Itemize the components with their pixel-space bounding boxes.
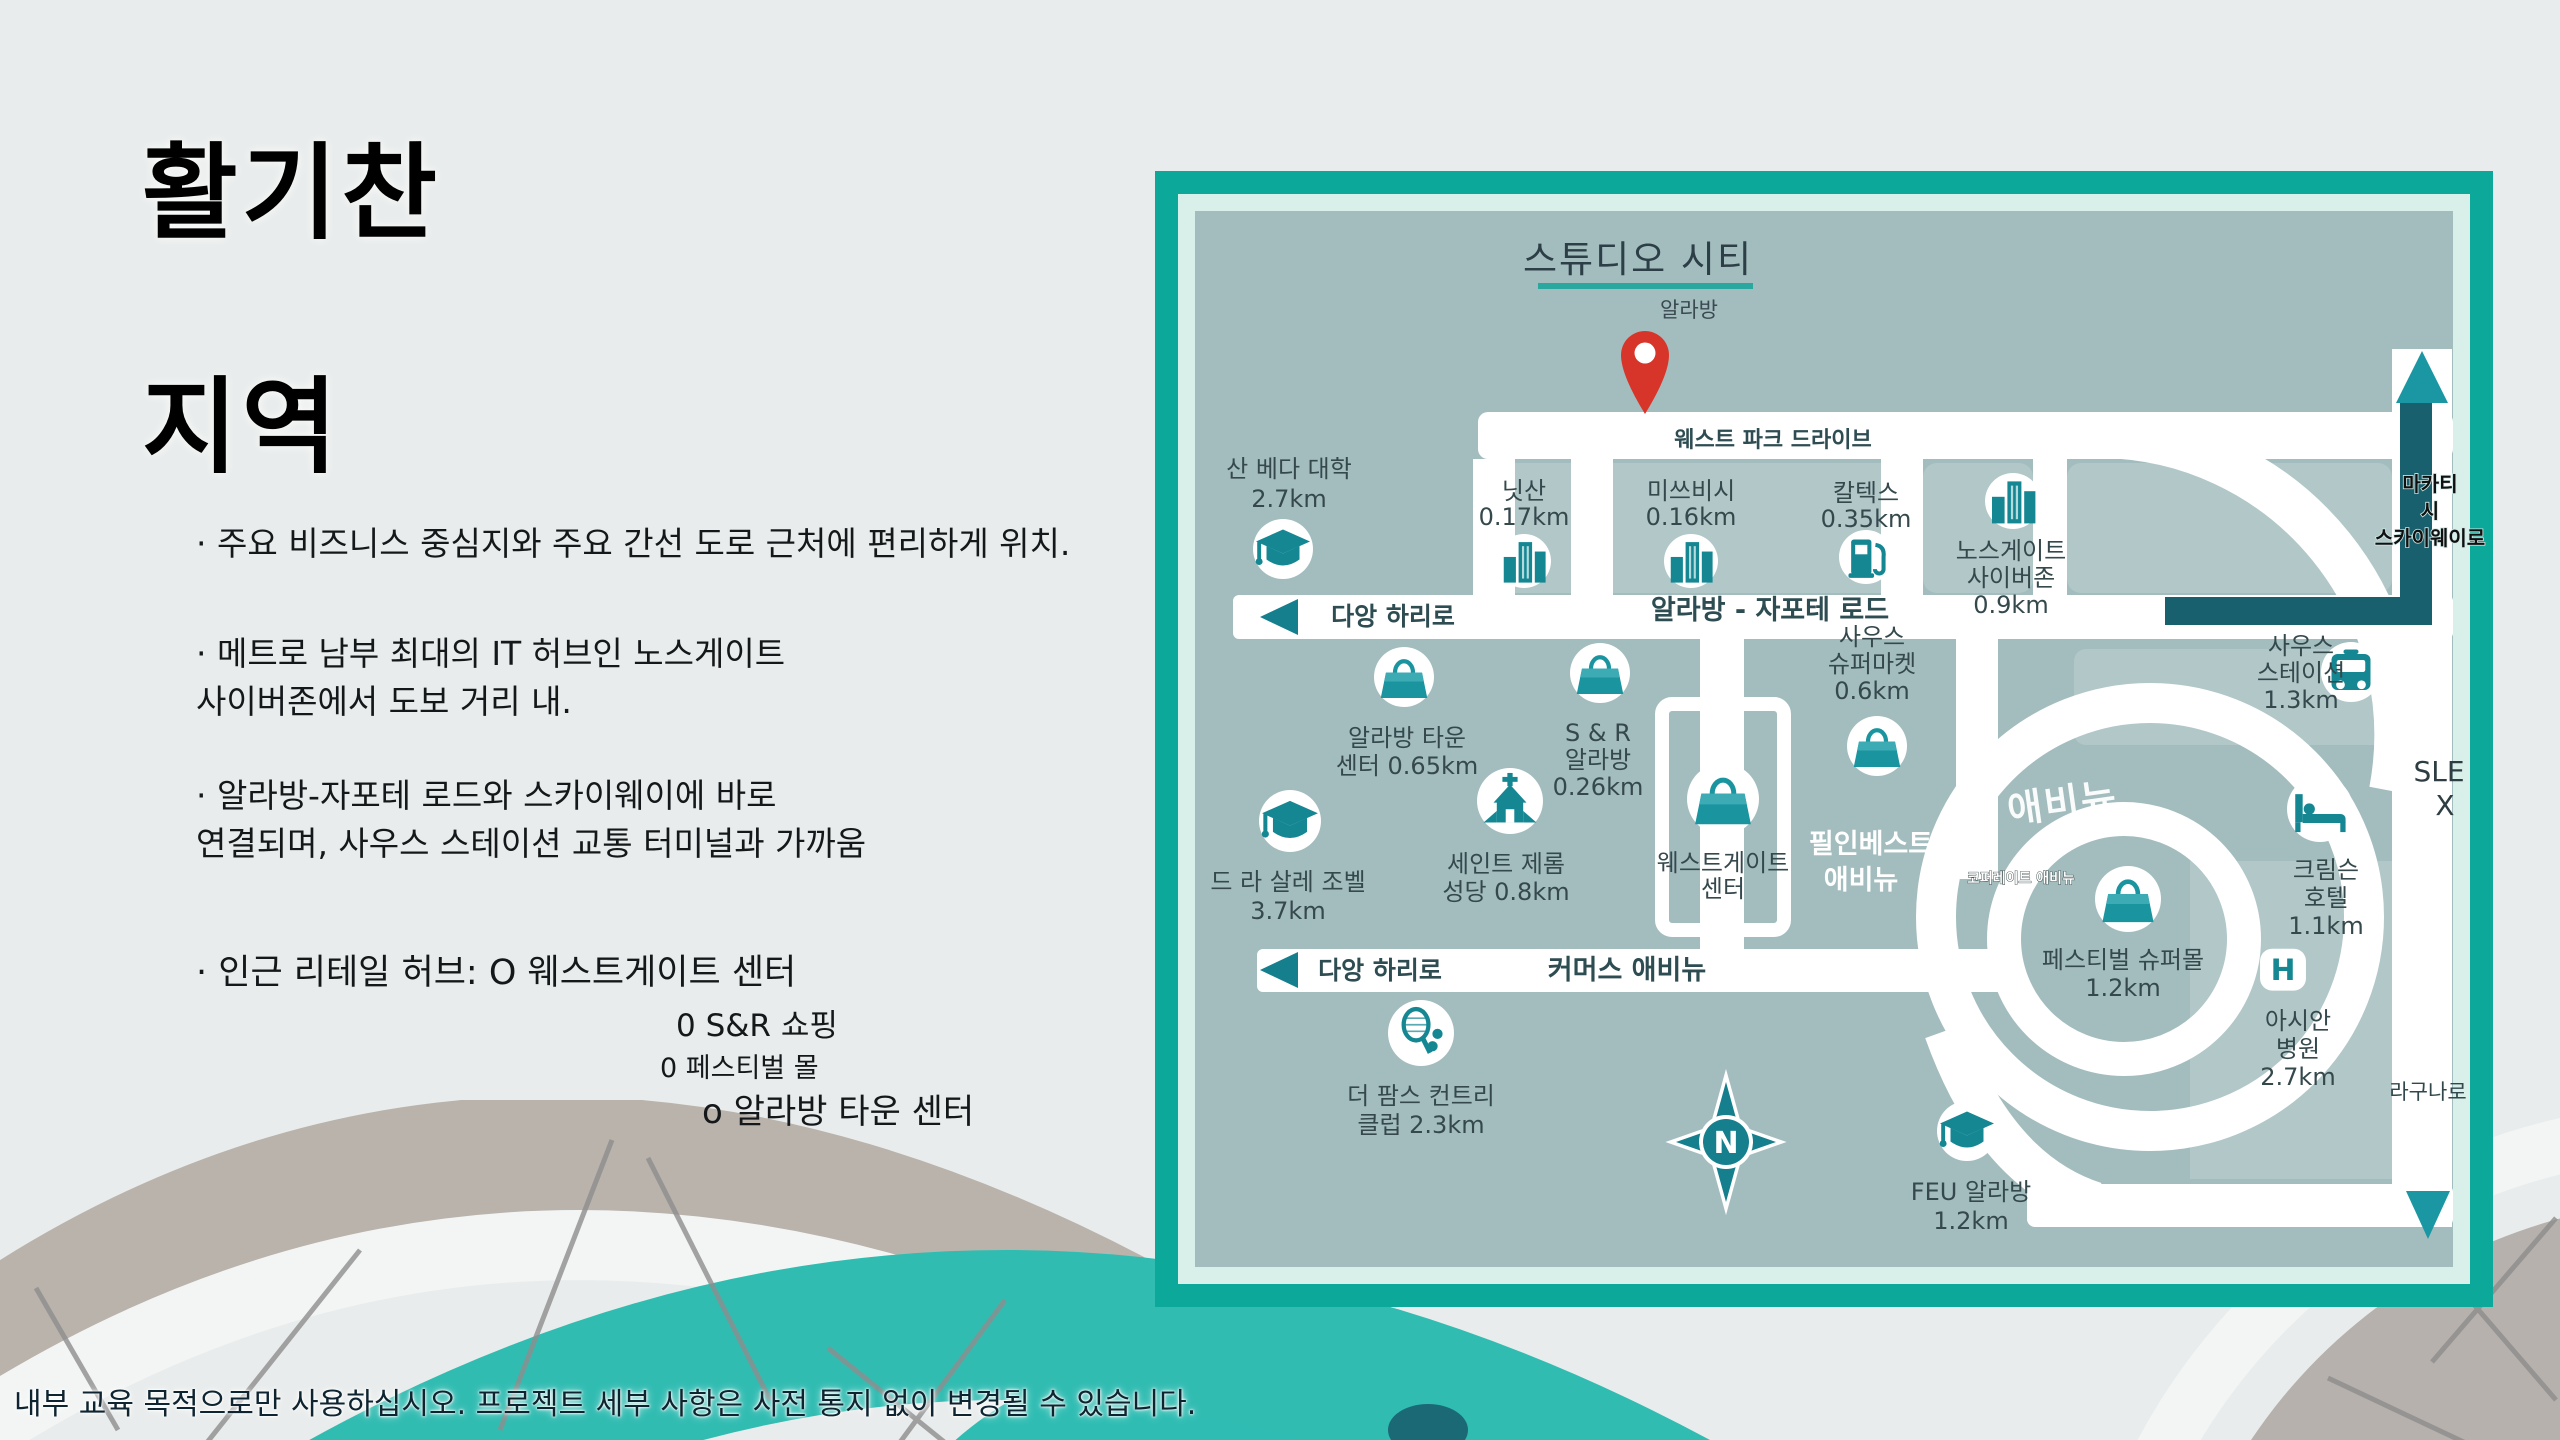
poi-label: 성당 0.8km: [1442, 878, 1569, 906]
poi-label: 스테이션: [2257, 659, 2345, 687]
retail-subitem-snr: 0 S&R 쇼핑: [676, 1000, 838, 1045]
grad-cap-icon: [1937, 1101, 1997, 1161]
buildings-icon: [1664, 534, 1718, 588]
poi-label: 더 팜스 컨트리: [1347, 1082, 1495, 1110]
bag-icon: [1847, 716, 1907, 776]
grad-cap-icon: [1259, 790, 1321, 852]
poi-label: 0.6km: [1834, 677, 1909, 705]
poi-label: 센터 0.65km: [1336, 752, 1479, 780]
grad-cap-icon: [1253, 519, 1313, 579]
poi-label: 3.7km: [1250, 897, 1325, 925]
poi-label: 0.9km: [1973, 591, 2048, 619]
bed-icon: [2287, 776, 2353, 842]
poi-label: 0.35km: [1821, 505, 1912, 533]
church-icon: [1477, 768, 1543, 834]
poi-label: 1.2km: [2085, 974, 2160, 1002]
svg-text:마카티: 마카티: [2402, 472, 2457, 496]
bullet-roads: · 알라방-자포테 로드와 스카이웨이에 바로 연결되며, 사우스 스테이션 교…: [196, 772, 1196, 868]
page-title-line-1: 활기찬: [142, 108, 441, 259]
poi-label: 1.2km: [1933, 1207, 2008, 1235]
road-label-filinvest-2: 애비뉴: [1824, 865, 1899, 896]
road-label-west-park: 웨스트 파크 드라이브: [1674, 428, 1871, 453]
slide-root: 활기찬 지역 · 주요 비즈니스 중심지와 주요 간선 도로 근처에 편리하게 …: [0, 0, 2560, 1440]
svg-text:시: 시: [2421, 499, 2439, 523]
compass-label: N: [1713, 1126, 1738, 1161]
retail-subitem-festival: 0 페스티벌 몰: [660, 1046, 819, 1085]
hospital-letter: H: [2271, 953, 2296, 988]
poi-label: 호텔: [2304, 884, 2348, 912]
poi-label: 2.7km: [2260, 1063, 2335, 1091]
poi-label: 아시안: [2265, 1007, 2331, 1035]
poi-label: 산 베다 대학: [1226, 455, 1352, 483]
buildings-icon: [1985, 473, 2041, 529]
road-label-daang-hari-1: 다앙 하리로: [1331, 602, 1455, 631]
map-subtitle: 알라방: [1660, 298, 1718, 322]
bullet-it-hub: · 메트로 남부 최대의 IT 허브인 노스게이트 사이버존에서 도보 거리 내…: [196, 630, 1196, 726]
footer-disclaimer: 내부 교육 목적으로만 사용하십시오. 프로젝트 세부 사항은 사전 통지 없이…: [14, 1379, 1196, 1423]
poi-label: 사우스: [2268, 632, 2334, 660]
bullet-location: · 주요 비즈니스 중심지와 주요 간선 도로 근처에 편리하게 위치.: [196, 520, 1196, 568]
road-label-sle: SLE: [2413, 755, 2464, 788]
poi-label: 크림슨: [2293, 856, 2359, 884]
poi-label: 병원: [2276, 1035, 2320, 1063]
poi-label: 미쓰비시: [1647, 477, 1735, 505]
tennis-icon: [1388, 1000, 1454, 1066]
poi-label: 0.26km: [1553, 773, 1644, 801]
gas-pump-icon: [1839, 530, 1893, 584]
bag-icon: [1374, 647, 1434, 707]
poi-label: 노스게이트: [1956, 537, 2066, 565]
road-label-filinvest-1: 필인베스트: [1809, 829, 1933, 860]
poi-label: FEU 알라방: [1911, 1178, 2031, 1206]
buildings-icon: [1497, 534, 1551, 588]
poi-label: 세인트 제롬: [1447, 850, 1565, 878]
road-label-laguna: 라구나로: [2389, 1080, 2466, 1104]
retail-subitem-atc: o 알라방 타운 센터: [702, 1084, 974, 1133]
road-label-daang-hari-2: 다앙 하리로: [1318, 956, 1442, 985]
map-title: 스튜디오 시티: [1523, 238, 1753, 281]
poi-label: 2.7km: [1251, 485, 1326, 513]
hospital-icon: H: [2260, 949, 2306, 991]
poi-label: 1.3km: [2263, 686, 2338, 714]
page-title-line-2: 지역: [142, 342, 341, 493]
poi-label: 페스티벌 슈퍼몰: [2042, 946, 2204, 974]
map-title-underline: [1538, 283, 1753, 289]
bag-icon: [1687, 763, 1759, 835]
bag-icon: [2095, 866, 2161, 932]
poi-label: 웨스트게이트: [1657, 849, 1789, 877]
road-label-sle-x: X: [2435, 789, 2454, 822]
road-label-alabang-zapote: 알라방 - 자포테 로드: [1651, 595, 1889, 626]
alabang-location-map: 스튜디오 시티 알라방 웨스트 파크 드라이브 다앙 하리로 알라방 - 자포테…: [1155, 171, 2493, 1307]
bag-icon: [1570, 643, 1630, 703]
poi-label: 알라방: [1565, 746, 1631, 774]
bullet-retail-hubs: · 인근 리테일 허브: O 웨스트게이트 센터: [196, 948, 1246, 999]
poi-label: 드 라 살레 조벨: [1210, 868, 1365, 896]
poi-label: 센터: [1701, 875, 1745, 903]
poi-label: 칼텍스: [1833, 479, 1899, 507]
road-label-commerce: 커머스 애비뉴: [1548, 955, 1706, 986]
poi-label: 0.16km: [1646, 503, 1737, 531]
road-label-corporate: 코퍼레이트 애비뉴: [1967, 870, 2075, 887]
poi-label: 알라방 타운: [1348, 724, 1466, 752]
poi-label: 사우스: [1839, 623, 1905, 651]
poi-label: 사이버존: [1967, 564, 2055, 592]
svg-text:스카이웨이로: 스카이웨이로: [2375, 526, 2485, 550]
poi-label: 0.17km: [1479, 503, 1570, 531]
poi-label: 슈퍼마켓: [1828, 650, 1916, 678]
poi-label: 1.1km: [2288, 912, 2363, 940]
poi-label: S & R: [1565, 719, 1631, 747]
poi-label: 클럽 2.3km: [1357, 1111, 1484, 1139]
poi-label: 닛산: [1502, 477, 1546, 505]
